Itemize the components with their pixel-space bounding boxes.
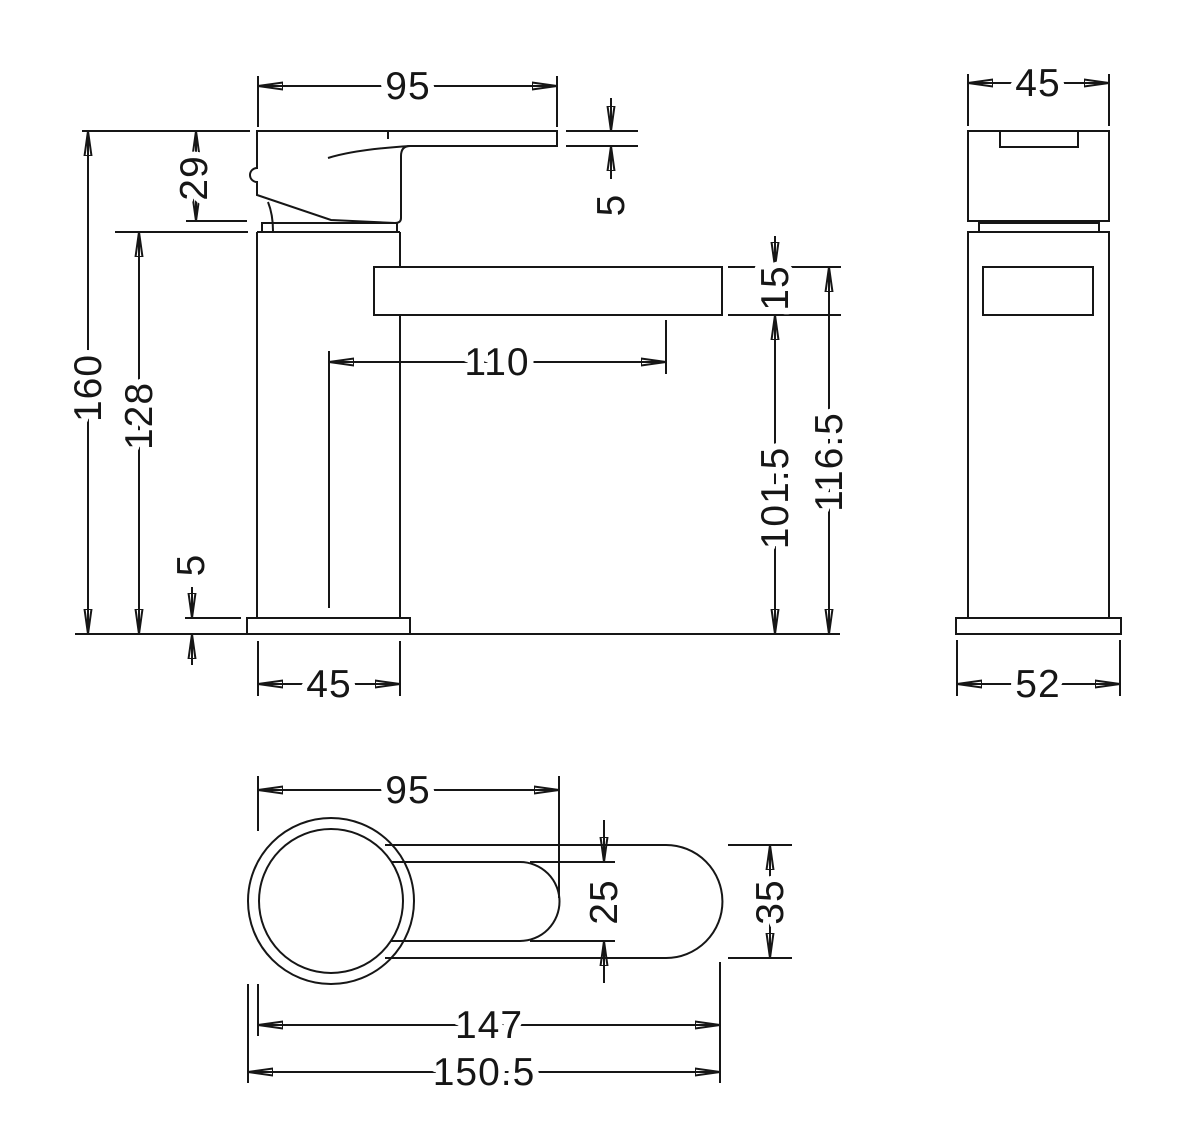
dim-label: 45 <box>306 663 351 706</box>
base-plate <box>247 618 410 634</box>
dim-label: 116.5 <box>808 412 851 512</box>
plan-outer-circle <box>248 818 414 984</box>
dim-label: 45 <box>1015 62 1060 105</box>
dim-front-lever-thickness: 5 <box>566 98 638 216</box>
dim-front-spout-thickness: 15 <box>728 236 841 315</box>
dim-label: 25 <box>583 879 626 924</box>
side-handle <box>968 131 1109 221</box>
dim-label: 5 <box>170 554 213 577</box>
side-base-plate <box>956 618 1121 634</box>
dim-label: 95 <box>385 65 430 108</box>
technical-drawing-canvas: 95 5 29 160 128 110 <box>0 0 1200 1146</box>
side-spout-outlet <box>983 267 1093 315</box>
plan-handle-outline <box>391 862 560 941</box>
dim-label: 128 <box>118 382 161 450</box>
dim-front-top-width: 95 <box>258 65 557 127</box>
dim-label: 29 <box>173 155 216 200</box>
dim-label: 35 <box>749 879 792 924</box>
dim-label: 147 <box>455 1004 523 1047</box>
dim-front-spout-underside-height: 101.5 <box>754 315 797 634</box>
dim-label: 95 <box>385 769 430 812</box>
cartridge-ring <box>262 223 397 232</box>
side-view: 45 52 <box>956 62 1121 706</box>
spout <box>374 267 722 315</box>
plan-outline <box>248 818 722 984</box>
front-view: 95 5 29 160 128 110 <box>67 65 851 706</box>
side-outline <box>956 131 1121 634</box>
dim-front-body-width: 45 <box>258 641 400 706</box>
dim-front-base-thickness: 5 <box>170 554 241 665</box>
side-cartridge-ring <box>979 223 1099 232</box>
dim-label: 150.5 <box>433 1051 536 1094</box>
body-curve-line <box>268 202 273 231</box>
dim-front-spout-top-height: 116.5 <box>808 267 851 634</box>
plan-inner-circle <box>259 829 403 973</box>
dim-side-base-depth: 52 <box>957 640 1120 706</box>
dim-plan-body-width: 35 <box>728 845 792 958</box>
plan-view: 95 25 35 147 150.5 <box>248 769 792 1094</box>
dim-front-overall-height: 160 <box>67 131 110 634</box>
dim-plan-handle-reach: 95 <box>258 769 559 898</box>
dim-label: 52 <box>1015 663 1060 706</box>
handle-outline <box>250 131 557 223</box>
dim-label: 15 <box>754 265 797 310</box>
side-lever-end <box>1000 131 1078 147</box>
dim-label: 5 <box>590 194 633 217</box>
dim-label: 160 <box>67 354 110 422</box>
side-body <box>968 232 1109 618</box>
handle-sweep-line <box>328 146 410 158</box>
dim-front-handle-height: 29 <box>82 131 250 221</box>
dim-label: 101.5 <box>754 447 797 550</box>
dim-front-spout-reach: 110 <box>329 320 666 608</box>
dim-side-body-depth: 45 <box>968 62 1109 126</box>
dim-label: 110 <box>464 341 529 384</box>
